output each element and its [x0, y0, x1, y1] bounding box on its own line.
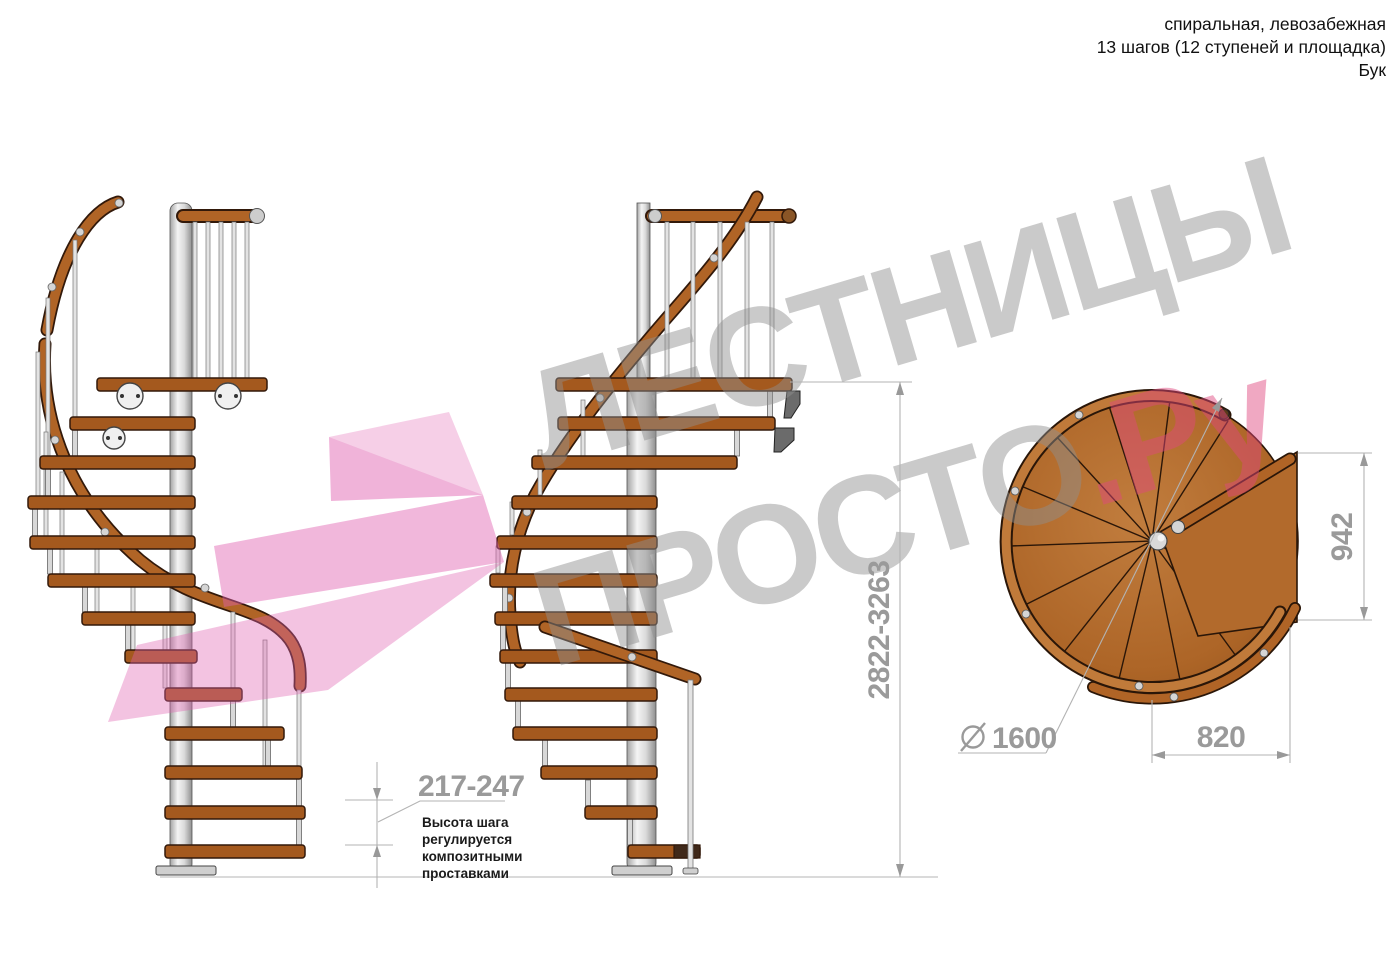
step	[70, 417, 195, 430]
step	[165, 845, 305, 858]
dim-diameter-value: 1600	[992, 722, 1057, 755]
baluster	[73, 240, 77, 417]
step	[165, 806, 305, 819]
connector-post	[503, 585, 508, 612]
step	[82, 612, 195, 625]
connector-post	[266, 740, 271, 766]
title-line3: Бук	[1358, 60, 1386, 80]
handrail-end-cap	[782, 209, 796, 223]
step	[30, 536, 195, 549]
connector-post	[586, 780, 591, 806]
step	[541, 766, 657, 779]
baluster	[60, 472, 64, 574]
step	[165, 727, 284, 740]
staircase-drawing-page: ЛЕСТНИЦЫ ПРОСТО.Ру	[0, 0, 1400, 975]
baluster	[193, 222, 197, 378]
svg-text:регулируется: регулируется	[422, 832, 512, 847]
connector-post	[543, 740, 548, 766]
post-foot	[683, 868, 698, 874]
connector-post	[83, 587, 88, 612]
step-height-note: Высота шага регулируется композитными пр…	[422, 815, 522, 881]
step	[585, 806, 657, 819]
connector-post	[297, 779, 302, 806]
balusters	[36, 222, 301, 806]
svg-text:Высота шага: Высота шага	[422, 815, 509, 830]
baluster	[36, 352, 40, 496]
connector-post	[46, 469, 51, 496]
spiral-handrail-upper	[47, 202, 118, 330]
connector-post	[506, 663, 511, 688]
step	[48, 574, 195, 587]
step	[28, 496, 195, 509]
title-block: спиральная, левозабежная 13 шагов (12 ст…	[1097, 14, 1387, 80]
baluster	[232, 222, 236, 378]
bottom-step-end	[674, 845, 700, 858]
connector-post	[33, 509, 38, 536]
svg-text:проставками: проставками	[422, 866, 509, 881]
dim-plan-depth-value: 942	[1326, 513, 1359, 562]
pole-base-plate	[612, 866, 672, 875]
dim-step-height-value: 217-247	[418, 770, 525, 803]
connector-post	[628, 818, 633, 845]
technical-drawing-canvas: ЛЕСТНИЦЫ ПРОСТО.Ру	[0, 0, 1400, 975]
baluster	[219, 222, 223, 378]
connector-post	[501, 625, 506, 650]
svg-text:композитными: композитными	[422, 849, 522, 864]
entry-rail-post	[688, 680, 693, 870]
baluster	[245, 222, 249, 378]
title-line2: 13 шагов (12 ступеней и площадка)	[1097, 37, 1386, 57]
pole-base-plate	[156, 866, 216, 875]
dim-landing-width-value: 820	[1197, 721, 1246, 754]
step	[165, 766, 302, 779]
step	[512, 496, 657, 509]
connector-post	[48, 549, 53, 574]
connector-post	[516, 700, 521, 727]
handrail-end-cap	[250, 209, 265, 224]
baluster	[206, 222, 210, 378]
step	[513, 727, 657, 740]
connector-post	[297, 819, 302, 845]
connector-post	[73, 430, 78, 456]
connector-post	[126, 625, 131, 650]
title-line1: спиральная, левозабежная	[1164, 14, 1386, 34]
step	[40, 456, 195, 469]
landing-rail-cap	[1172, 521, 1185, 534]
handrail-joint	[649, 210, 662, 223]
connector-post	[231, 701, 236, 727]
dim-total-height-value: 2822-3263	[863, 561, 896, 700]
